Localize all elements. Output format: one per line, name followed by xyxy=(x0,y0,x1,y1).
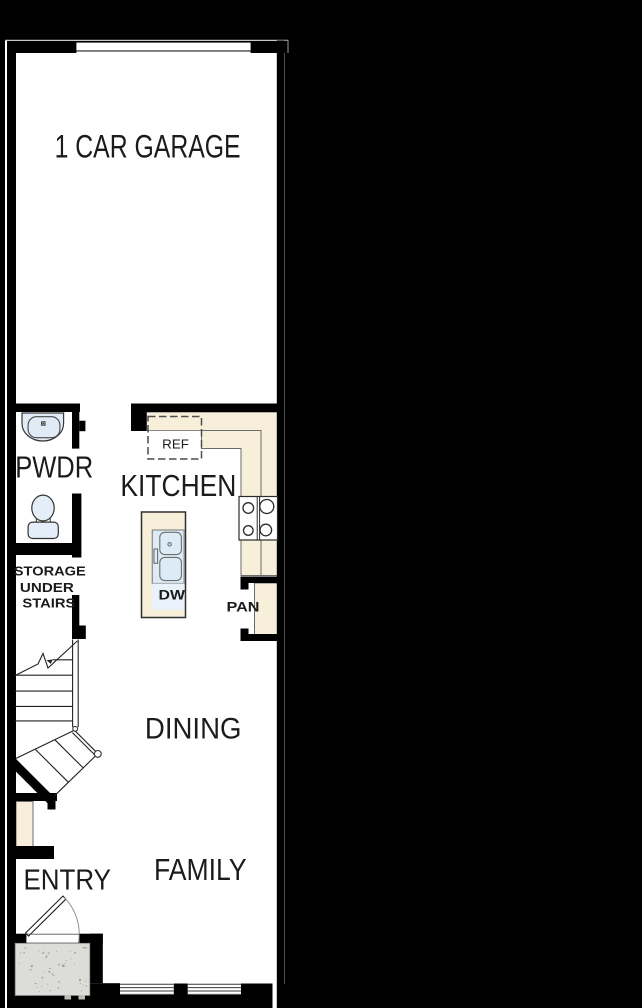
svg-text:STAIRS: STAIRS xyxy=(22,595,75,610)
svg-text:PWDR: PWDR xyxy=(15,450,93,485)
svg-text:DINING: DINING xyxy=(145,713,242,746)
svg-text:FAMILY: FAMILY xyxy=(154,852,247,887)
svg-text:PAN: PAN xyxy=(227,599,260,614)
svg-text:1 CAR GARAGE: 1 CAR GARAGE xyxy=(55,129,241,165)
svg-text:UNDER: UNDER xyxy=(20,580,75,595)
svg-text:KITCHEN: KITCHEN xyxy=(120,468,236,503)
svg-text:STORAGE: STORAGE xyxy=(14,563,86,578)
svg-text:ENTRY: ENTRY xyxy=(24,865,112,897)
svg-text:DW: DW xyxy=(159,588,186,603)
svg-text:REF: REF xyxy=(162,437,189,452)
